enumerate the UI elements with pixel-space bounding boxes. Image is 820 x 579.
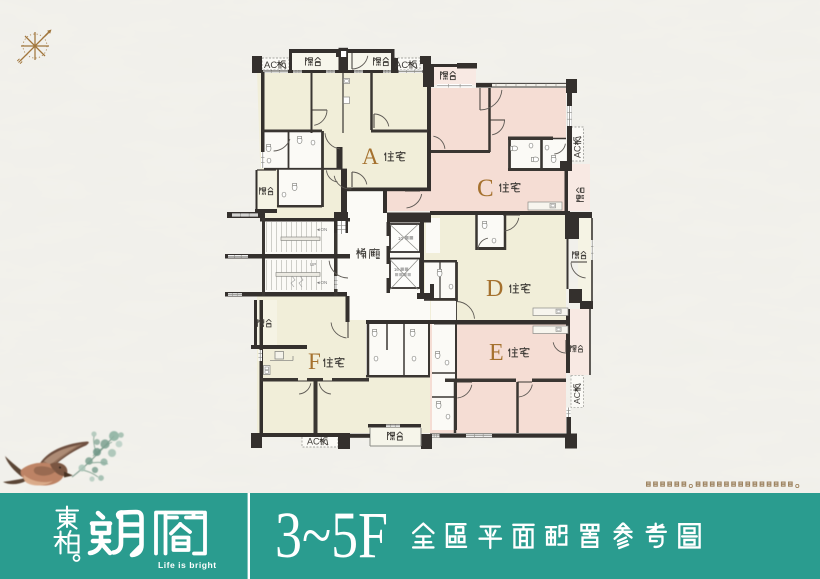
svg-text:10: 10 [398,236,404,241]
svg-text:AC: AC [572,392,582,404]
svg-text:Life is bright: Life is bright [158,560,217,570]
svg-text:16: 16 [394,267,399,272]
svg-text:A: A [362,144,379,169]
svg-text:3~5F: 3~5F [275,499,388,572]
svg-text:◄ON: ◄ON [316,227,327,232]
svg-text:D: D [486,276,503,302]
svg-text:AC: AC [264,60,277,71]
svg-text:◄ON: ◄ON [316,280,327,285]
svg-text:AC: AC [307,437,320,447]
svg-text:F: F [308,349,321,374]
svg-text:UP: UP [310,262,316,267]
svg-text:AC: AC [395,60,408,71]
svg-text:C: C [477,175,494,202]
svg-text:AC: AC [573,145,583,158]
svg-text:E: E [489,340,504,366]
